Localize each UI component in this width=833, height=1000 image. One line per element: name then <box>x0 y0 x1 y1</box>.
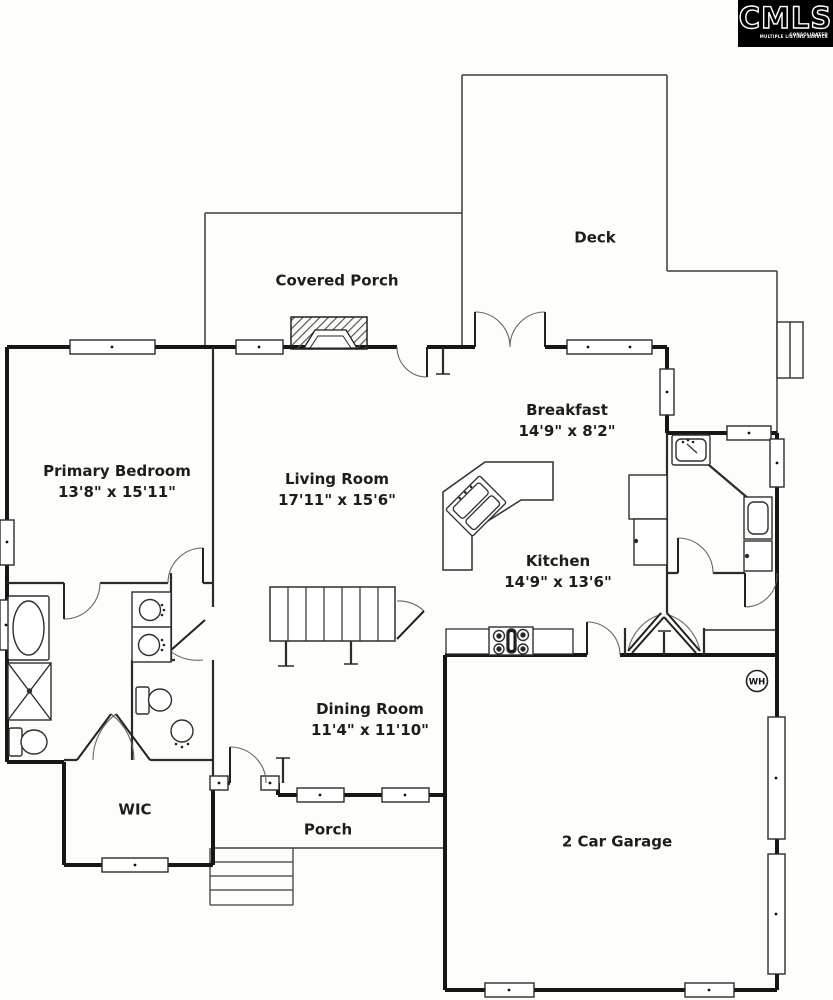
room-dims: 14'9" x 13'6" <box>504 572 612 593</box>
room-name: Deck <box>574 229 616 247</box>
toilet-primary <box>9 728 47 756</box>
room-dims: 13'8" x 15'11" <box>43 482 191 503</box>
stove <box>489 627 533 655</box>
water-heater-label: WH <box>749 678 766 688</box>
staircase <box>270 587 395 641</box>
floor-plan-page: WH Deck Covered Porch Breakfast 14'9" x … <box>0 0 833 1000</box>
entry-steps <box>210 848 293 905</box>
room-label-kitchen: Kitchen 14'9" x 13'6" <box>504 551 612 593</box>
room-label-breakfast: Breakfast 14'9" x 8'2" <box>518 400 615 442</box>
room-label-covered-porch: Covered Porch <box>275 271 398 292</box>
room-label-deck: Deck <box>574 228 616 249</box>
room-dims: 11'4" x 11'10" <box>311 720 429 741</box>
room-label-dining-room: Dining Room 11'4" x 11'10" <box>311 699 429 741</box>
utility-sink <box>672 435 710 465</box>
double-vanity <box>132 592 171 662</box>
room-dims: 14'9" x 8'2" <box>518 421 615 442</box>
fireplace <box>291 317 367 349</box>
room-label-garage: 2 Car Garage <box>562 832 672 853</box>
room-dims: 17'11" x 15'6" <box>278 490 396 511</box>
refrigerator-pantry <box>629 475 667 565</box>
room-name: WIC <box>118 801 151 819</box>
cmls-logo-text: CMLS <box>738 1 833 35</box>
room-label-primary-bedroom: Primary Bedroom 13'8" x 15'11" <box>43 461 191 503</box>
room-name: Porch <box>304 821 352 839</box>
toilet-powder <box>136 687 172 714</box>
room-label-porch: Porch <box>304 820 352 841</box>
room-name: 2 Car Garage <box>562 833 672 851</box>
exterior-walls <box>7 347 777 990</box>
pedestal-sink <box>171 720 193 748</box>
laundry-fixtures <box>672 435 772 571</box>
room-name: Dining Room <box>316 700 424 718</box>
room-name: Kitchen <box>526 552 590 570</box>
room-label-living-room: Living Room 17'11" x 15'6" <box>278 469 396 511</box>
room-name: Living Room <box>285 470 389 488</box>
laundry-closet <box>744 497 772 571</box>
shower <box>8 663 51 720</box>
window-ticks <box>5 346 779 992</box>
room-name: Primary Bedroom <box>43 462 191 480</box>
water-heater: WH <box>747 671 768 692</box>
deck-outline <box>462 75 803 433</box>
bathtub <box>8 596 49 660</box>
room-name: Breakfast <box>526 401 608 419</box>
cmls-logo: CMLS CONSOLIDATED MULTIPLE LISTING SERVI… <box>738 0 833 47</box>
window-breakfast-top <box>567 340 652 354</box>
room-name: Covered Porch <box>275 272 398 290</box>
room-label-wic: WIC <box>118 800 151 821</box>
